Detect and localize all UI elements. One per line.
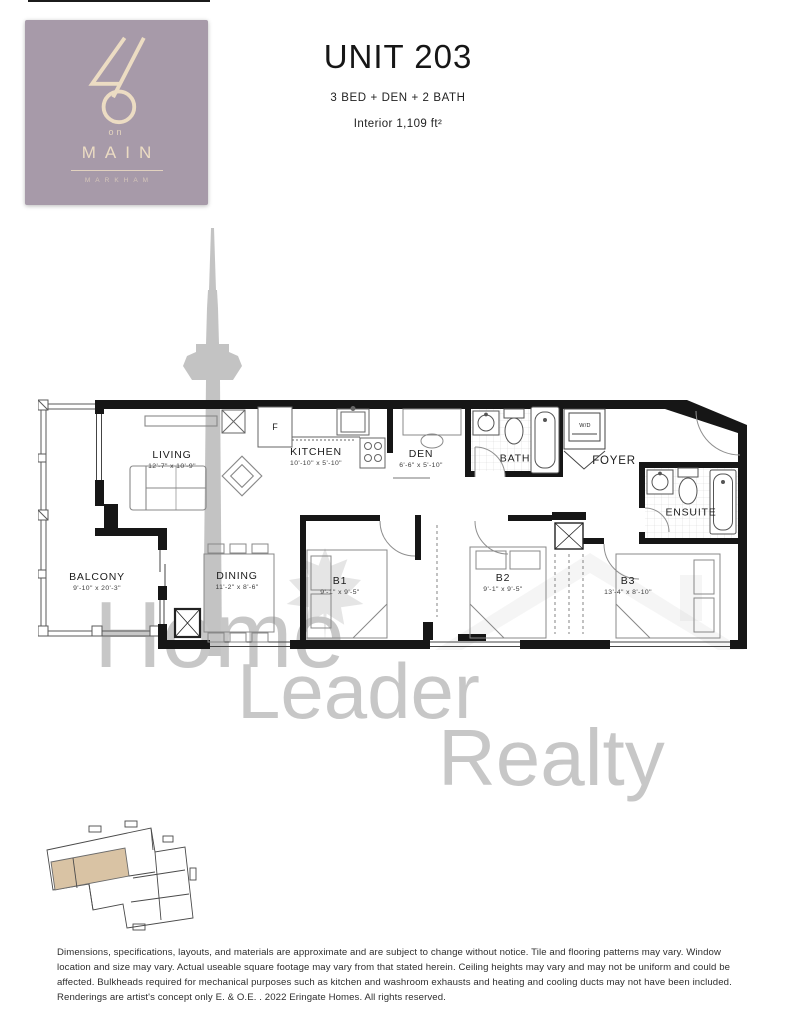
room-label-living: LIVING 12'-7" x 10'-9" — [148, 449, 196, 471]
room-label-foyer: FOYER — [592, 455, 636, 469]
page-top-edge — [28, 0, 210, 2]
unit-area: Interior 1,109 ft² — [268, 118, 528, 130]
balcony-railing — [38, 400, 160, 636]
brand-logo: on MAIN MARKHAM — [25, 20, 208, 205]
room-label-ensuite: ENSUITE — [665, 507, 716, 520]
watermark-realty: Realty — [438, 718, 665, 798]
dining-furniture — [204, 544, 274, 642]
logo-on-text: on — [25, 127, 208, 137]
logo-46-monogram-icon — [25, 34, 208, 131]
floorplan-drawing — [38, 392, 758, 660]
room-label-bath: BATH — [500, 453, 530, 466]
disclaimer-text: Dimensions, specifications, layouts, and… — [57, 946, 749, 1005]
den-furniture — [403, 409, 461, 448]
room-label-b1: B1 9'-1" x 9'-5" — [320, 575, 359, 597]
room-label-balcony: BALCONY 9'-10" x 20'-3" — [69, 571, 125, 593]
logo-divider — [71, 170, 163, 171]
logo-main-text: MAIN — [25, 143, 208, 163]
title-block: UNIT 203 3 BED + DEN + 2 BATH Interior 1… — [268, 38, 528, 130]
room-label-b3: B3 13'-4" x 8'-10" — [604, 575, 652, 597]
building-key-plan — [33, 816, 201, 936]
room-label-b2: B2 9'-1" x 9'-5" — [483, 572, 522, 594]
washer-dryer-label: W/D — [579, 423, 591, 429]
fridge-label: F — [272, 422, 278, 432]
room-label-den: DEN 6'-6" x 5'-10" — [399, 448, 443, 470]
floorplan-page: on MAIN MARKHAM UNIT 203 3 BED + DEN + 2… — [0, 0, 796, 1030]
room-label-kitchen: KITCHEN 10'-10" x 5'-10" — [290, 446, 342, 468]
unit-title: UNIT 203 — [268, 38, 528, 76]
room-label-dining: DINING 11'-2" x 8'-6" — [215, 570, 258, 592]
unit-config: 3 BED + DEN + 2 BATH — [268, 92, 528, 104]
logo-sub-text: MARKHAM — [25, 177, 208, 184]
